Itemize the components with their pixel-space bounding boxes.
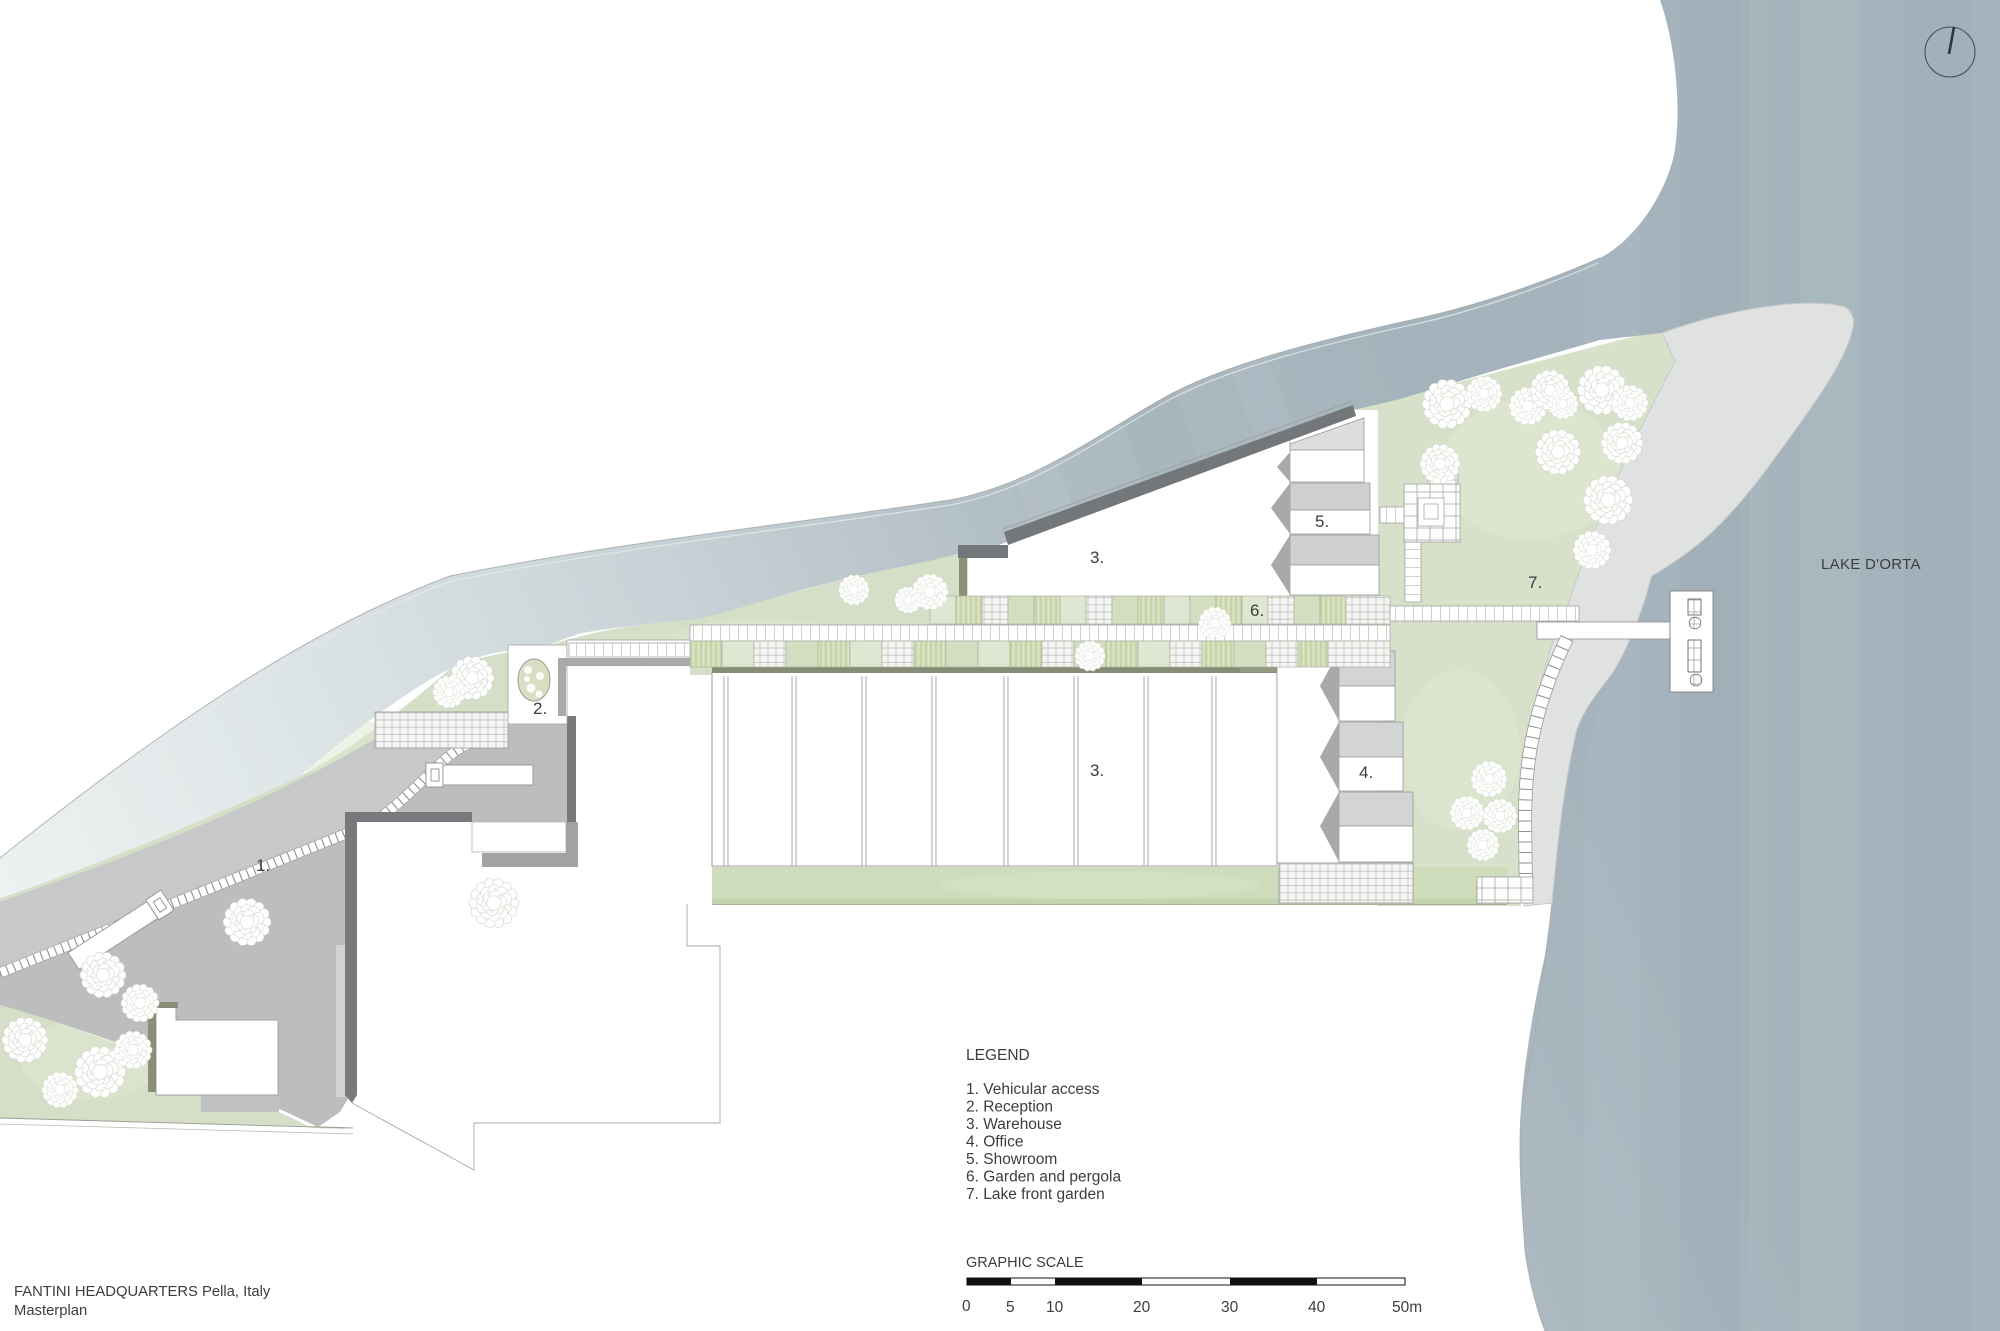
svg-text:3.: 3.	[1090, 548, 1104, 567]
svg-text:GRAPHIC SCALE: GRAPHIC SCALE	[966, 1255, 1084, 1271]
svg-text:40: 40	[1308, 1299, 1326, 1316]
svg-text:5.: 5.	[1315, 512, 1329, 531]
svg-text:6. Garden and pergola: 6. Garden and pergola	[966, 1169, 1121, 1186]
svg-text:4.: 4.	[1359, 763, 1373, 782]
svg-text:5: 5	[1006, 1299, 1015, 1316]
svg-text:LAKE D'ORTA: LAKE D'ORTA	[1821, 556, 1921, 573]
svg-text:10: 10	[1046, 1299, 1064, 1316]
svg-text:LEGEND: LEGEND	[966, 1047, 1030, 1064]
svg-text:0: 0	[962, 1298, 971, 1315]
svg-text:1. Vehicular access: 1. Vehicular access	[966, 1081, 1100, 1098]
svg-text:4. Office: 4. Office	[966, 1134, 1023, 1151]
svg-text:Masterplan: Masterplan	[14, 1303, 87, 1319]
svg-text:7. Lake front garden: 7. Lake front garden	[966, 1186, 1105, 1203]
svg-text:50m: 50m	[1392, 1299, 1422, 1316]
svg-text:6.: 6.	[1250, 601, 1264, 620]
svg-text:20: 20	[1133, 1299, 1151, 1316]
svg-text:30: 30	[1221, 1299, 1239, 1316]
svg-text:1.: 1.	[256, 856, 270, 875]
svg-text:7.: 7.	[1528, 573, 1542, 592]
svg-text:5. Showroom: 5. Showroom	[966, 1151, 1057, 1168]
svg-text:2.: 2.	[533, 699, 547, 718]
svg-text:2. Reception: 2. Reception	[966, 1099, 1053, 1116]
svg-text:FANTINI HEADQUARTERS Pella, I: FANTINI HEADQUARTERS Pella, Italy	[14, 1284, 271, 1300]
svg-text:3. Warehouse: 3. Warehouse	[966, 1116, 1062, 1133]
svg-text:3.: 3.	[1090, 761, 1104, 780]
